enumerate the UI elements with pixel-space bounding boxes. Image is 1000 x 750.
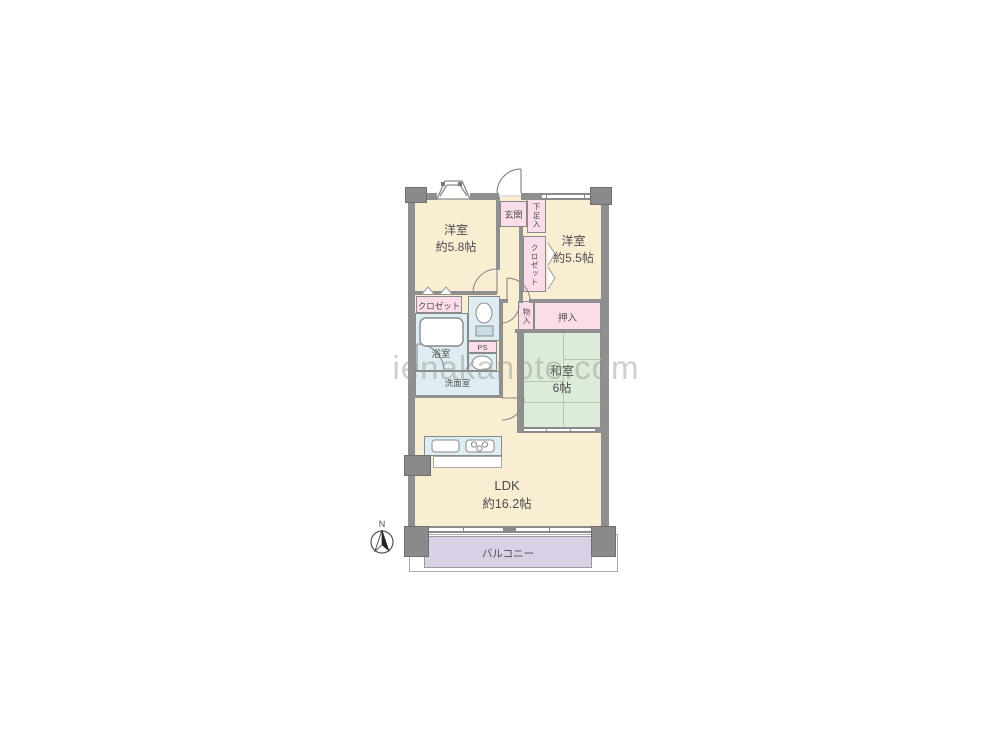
pillar — [590, 187, 612, 205]
room-label-western1: 洋室 約5.8帖 — [415, 222, 497, 256]
pillar — [591, 526, 616, 557]
wall — [412, 291, 497, 295]
room-label-western2: 洋室 約5.5帖 — [546, 233, 601, 267]
washroom-basin-area — [468, 353, 497, 371]
label-washroom: 洗面室 — [415, 377, 500, 389]
wall — [515, 329, 601, 333]
label-balcony: バルコニー — [424, 546, 592, 561]
wall — [470, 193, 499, 200]
compass-icon — [371, 530, 393, 553]
pillar — [405, 187, 427, 203]
tatami-grid — [524, 402, 602, 403]
label-bath: 浴室 — [415, 346, 467, 360]
label-entrance: 玄関 — [500, 208, 527, 221]
toilet-area — [468, 296, 500, 341]
room-label-japanese: 和室 6帖 — [523, 363, 601, 397]
bath-area — [415, 313, 468, 371]
label-storage-small: 物入 — [521, 304, 532, 328]
entrance-door-arc — [497, 169, 521, 196]
label-oshiire: 押入 — [534, 310, 601, 324]
wall — [595, 427, 601, 433]
wall — [529, 299, 601, 303]
wall — [519, 227, 523, 303]
pillar — [404, 455, 431, 476]
sliding-door-japanese-room — [524, 427, 595, 433]
label-shoe-cabinet: 下足入 — [531, 201, 542, 231]
wall — [412, 395, 500, 398]
kitchen-counter — [424, 436, 502, 456]
wall — [408, 193, 415, 531]
label-closet-west1: クロゼット — [416, 300, 462, 312]
wall — [601, 193, 609, 531]
tatami-grid — [563, 359, 602, 360]
label-pipe-space: PS — [468, 343, 497, 352]
floorplan-canvas: 洋室 約5.8帖 洋室 約5.5帖 和室 6帖 LDK 約16.2帖 バルコニー… — [0, 0, 1000, 750]
window — [542, 193, 590, 200]
balcony-window — [429, 526, 591, 533]
wall — [521, 193, 542, 200]
room-label-ldk: LDK 約16.2帖 — [427, 477, 587, 513]
compass-label: N — [375, 519, 389, 529]
kitchen-counter-front — [433, 456, 502, 468]
label-closet-west2: クロゼット — [529, 241, 540, 289]
